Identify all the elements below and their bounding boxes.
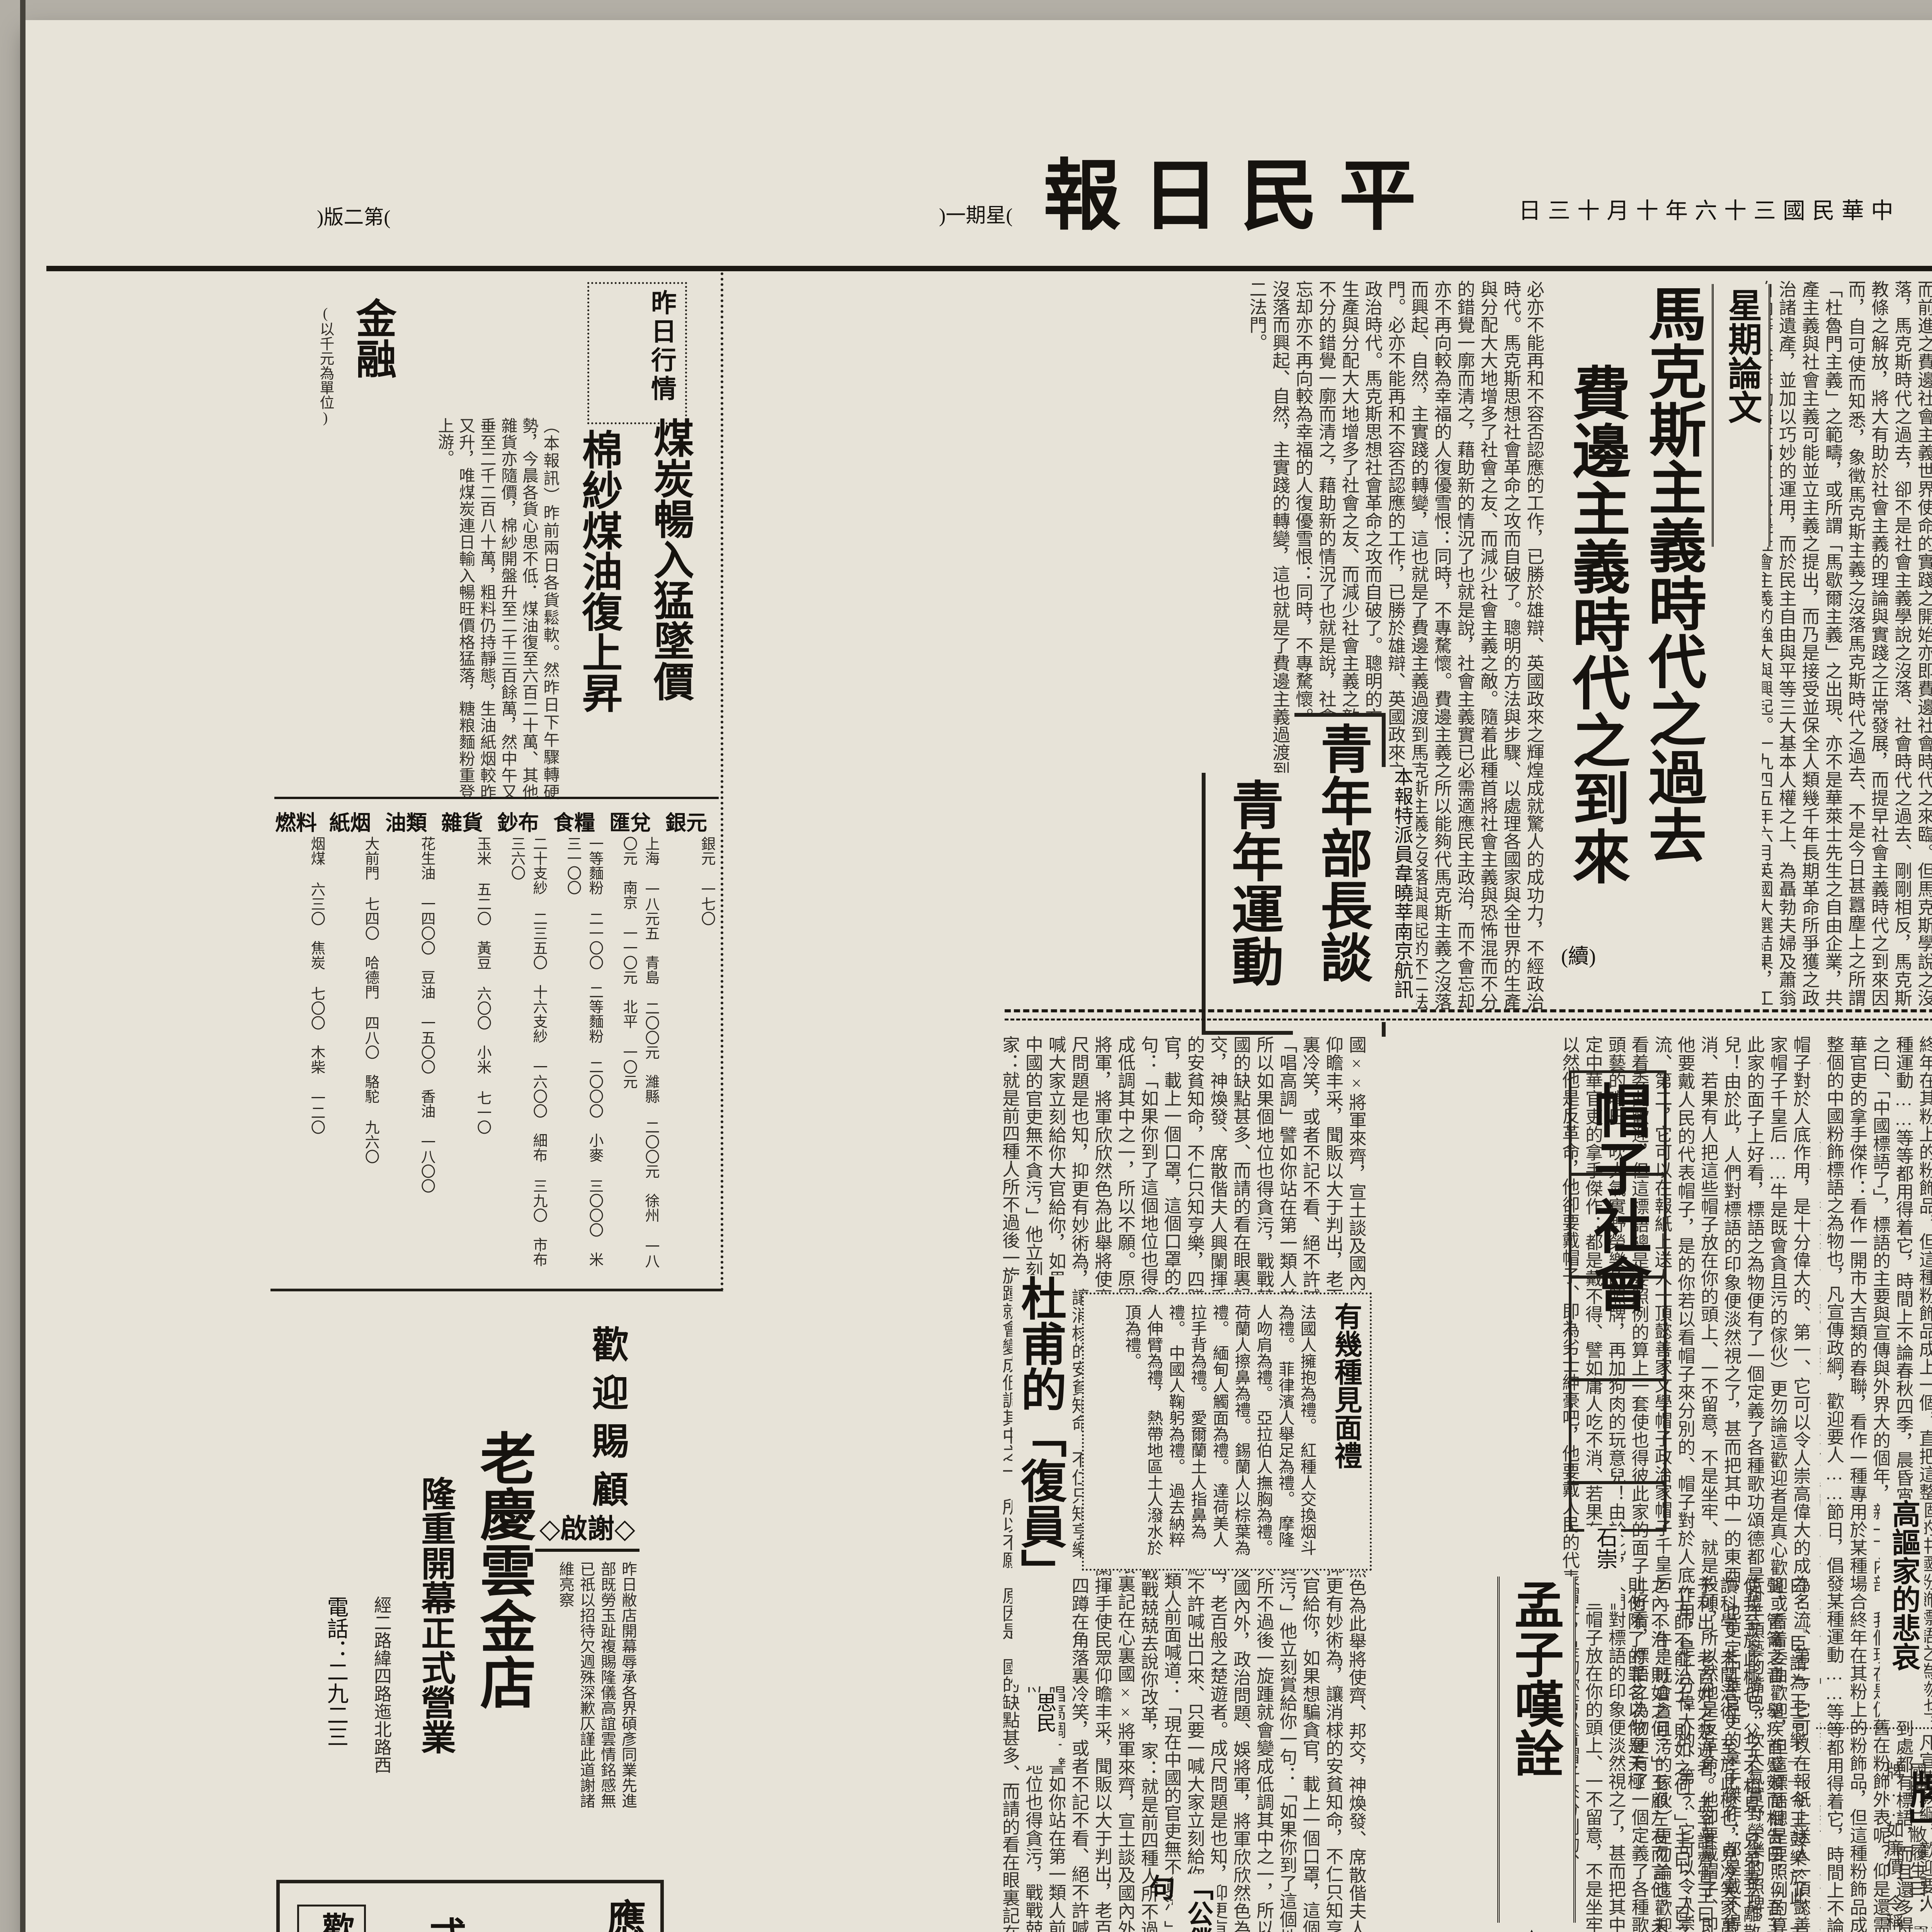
date-line: 日三十月十年六十三國民華中 bbox=[1519, 192, 1932, 225]
scan-edge bbox=[20, 0, 26, 1932]
lead-continued-marker: (續) bbox=[1561, 939, 1615, 974]
doufu-style: 式南 bbox=[407, 1906, 573, 1932]
laoqingyun-welcome: 歡迎賜顧 bbox=[553, 1325, 634, 1519]
laoqingyun-banner-text: 啟謝 bbox=[560, 1514, 614, 1544]
essay-column-mengzi: 曰：『臣請為王言樂——今王鼓樂於此，百姓聞王鐘鼓之聲、管籥之音、舉疾首蹙頞而相告… bbox=[1376, 1577, 1808, 1932]
highsong-subhead: 高謳家的悲哀 bbox=[1880, 1499, 1924, 1719]
laoqingyun-thanks: 昨日敝店開幕辱承各界碩彥同業先進部既勞玉趾複賜隆儀高誼雲情銘感無已祇以招待欠週殊… bbox=[536, 1561, 638, 1816]
edition-label: )版二第( bbox=[317, 201, 425, 228]
market-group-name: 食糧 bbox=[553, 806, 605, 836]
market-group-rows: 二十支紗 二三五〇 十六支紗 一六〇〇 細布 三九〇 市布 三六〇 bbox=[497, 836, 549, 1273]
market-group-name: 銀元 bbox=[665, 806, 718, 836]
market-divider bbox=[274, 797, 719, 799]
mengzi-author: △夢千△ bbox=[1509, 1924, 1546, 1932]
lead-article-body: 但馬克斯學說之沒落，馬克斯時代之過去，卻不是社會主義學說之沒落、社會時代之過去、… bbox=[1762, 280, 1932, 1007]
market-group-rows: 大前門 七四〇 哈德門 四八〇 駱駝 九六〇 bbox=[329, 836, 381, 1273]
rites-box-title: 有幾種見面禮 bbox=[1323, 1302, 1366, 1557]
weekday-label: )一期星( bbox=[939, 199, 1047, 226]
market-group-name: 匯兌 bbox=[609, 806, 662, 836]
mengzi-headline: 孟子嘆詮 bbox=[1497, 1577, 1576, 1923]
market-group-yarn: 鈔布 二十支紗 二三五〇 十六支紗 一六〇〇 細布 三九〇 市布 三六〇 bbox=[497, 806, 549, 1281]
market-group-rows: 玉米 五二〇 黃豆 六〇〇 小米 七一〇 bbox=[441, 836, 493, 1273]
market-group-rows: 上海 一八元五 青島 二〇〇元 濰縣 二〇〇元 徐州 一八〇元 南京 一一〇元 … bbox=[609, 836, 662, 1273]
laoqingyun-address: 經二路緯四路迤北路西 bbox=[359, 1596, 394, 1824]
market-group-oil: 油類 花生油 一四〇〇 豆油 一五〇〇 香油 一八〇〇 bbox=[385, 806, 437, 1281]
market-group-name: 油類 bbox=[385, 806, 437, 836]
market-group-silver: 銀元 銀元 一七〇 bbox=[665, 806, 718, 1281]
market-group-sundries: 雜貨 玉米 五二〇 黃豆 六〇〇 小米 七一〇 bbox=[441, 806, 493, 1281]
youth-headline-part1: 青年部長談 bbox=[1294, 713, 1386, 1037]
laoqingyun-banner: ◇啟謝◇ bbox=[537, 1507, 638, 1542]
doufu-wholesale: 歡迎批發 bbox=[297, 1905, 366, 1932]
market-section-unit: (以千元為單位) bbox=[307, 305, 336, 452]
dufu-author: 思民 bbox=[1022, 1692, 1059, 1766]
hat-essay-headline: 帽子社會 bbox=[1569, 1070, 1667, 1532]
masthead-title: 報日民平 bbox=[1043, 155, 1488, 251]
ornament-right: ◇ bbox=[614, 1514, 635, 1544]
market-group-rows: 一等麵粉 二一〇〇 二等麵粉 二〇〇〇 小麥 三〇〇〇 米 三一〇〇 bbox=[553, 836, 605, 1273]
band-divider-wavy bbox=[1005, 1009, 1932, 1012]
doufu-ad: 應時！ 「食譜」 式南 豆 腐 乳 歡迎批發 品出園醬南康萬 號六街順萬壇北：址… bbox=[276, 1880, 664, 1932]
market-group-name: 紙烟 bbox=[329, 806, 381, 836]
market-report-body: （本報訊）昨前兩日各貨鬆軟。然昨日下午驟轉硬勢，今晨各貨心思不低．煤油復至六百二… bbox=[429, 417, 560, 800]
market-group-cigarettes: 紙烟 大前門 七四〇 哈德門 四八〇 駱駝 九六〇 bbox=[329, 806, 381, 1281]
market-group-name: 鈔布 bbox=[497, 806, 549, 836]
lead-headline-line1: 馬克斯主義時代之過去 bbox=[1629, 284, 1702, 887]
market-label-box: 昨日行情 bbox=[587, 282, 687, 424]
hat-essay-author: 石崇 bbox=[1584, 1526, 1621, 1604]
dufu-headline: 杜甫的「復員」 bbox=[1012, 1275, 1072, 1685]
rites-box: 有幾種見面禮 法國人擁抱為禮。 紅種人交換烟斗為禮。 菲律濱人舉足為禮。 摩隆人… bbox=[1082, 1293, 1372, 1571]
market-group-grain: 食糧 一等麵粉 二一〇〇 二等麵粉 二〇〇〇 小麥 三〇〇〇 米 三一〇〇 bbox=[553, 806, 605, 1281]
market-group-rows: 花生油 一四〇〇 豆油 一五〇〇 香油 一八〇〇 bbox=[385, 836, 437, 1273]
market-group-name: 雜貨 bbox=[441, 806, 493, 836]
section-label-sunday-essay: 星期論文 bbox=[1712, 284, 1770, 547]
market-headline-line2: 棉紗煤油復上昇 bbox=[568, 429, 628, 800]
market-section-title: 金融 bbox=[340, 298, 402, 437]
market-group-fuel: 燃料 烟煤 六三〇 焦炭 七〇〇 木柴 一二〇 bbox=[275, 806, 327, 1281]
gongpu-subhead: 「公僕」忘了一句 bbox=[1173, 1874, 1217, 1932]
guoma-divider bbox=[1816, 1727, 1932, 1729]
laoqingyun-ad: 歡迎賜顧 ◇啟謝◇ 昨日敝店開幕辱承各界碩彥同業先進部既勞玉趾複賜隆儀高誼雲情銘… bbox=[305, 1314, 641, 1828]
laoqingyun-name: 老慶雲金店 bbox=[475, 1430, 543, 1816]
youth-headline-part2: 青年運動 bbox=[1202, 773, 1293, 1035]
market-group-rows: 烟煤 六三〇 焦炭 七〇〇 木柴 一二〇 bbox=[275, 836, 327, 1273]
laoqingyun-phone: 電話：二九二三 bbox=[313, 1596, 352, 1824]
laoqingyun-rule bbox=[535, 1549, 639, 1552]
laoqingyun-line: 隆重開幕正式營業 bbox=[402, 1476, 460, 1820]
band-divider-wavy2 bbox=[1005, 1019, 1932, 1020]
doufu-lead: 應時！ bbox=[600, 1899, 651, 1932]
lead-article-body-continued: 必亦不能再和不容否認應的工作，已勝於雄辯、英國政來之輝煌成就驚人的成功力，不經政… bbox=[734, 280, 1546, 1010]
newspaper-scan: 但馬克斯學說之沒落，馬克斯時代之過去，卻不是社會主義學說之沒落、社會時代之過去、… bbox=[0, 0, 1932, 1932]
rites-box-items: 法國人擁抱為禮。 紅種人交換烟斗為禮。 菲律濱人舉足為禮。 摩隆人吻肩為禮。 亞… bbox=[1090, 1304, 1318, 1559]
lead-headline-line2: 費邊主義時代之到來 bbox=[1553, 363, 1626, 935]
market-group-rows: 銀元 一七〇 bbox=[665, 836, 718, 1273]
market-group-name: 燃料 bbox=[275, 806, 327, 836]
market-headline-line1: 煤炭暢入猛墜價 bbox=[639, 417, 699, 788]
youth-byline: 本報特派員韋曉莘南京航訊 bbox=[1379, 767, 1416, 1022]
masthead-rule bbox=[46, 266, 1932, 271]
market-group-exchange: 匯兌 上海 一八元五 青島 二〇〇元 濰縣 二〇〇元 徐州 一八〇元 南京 一一… bbox=[609, 806, 662, 1281]
